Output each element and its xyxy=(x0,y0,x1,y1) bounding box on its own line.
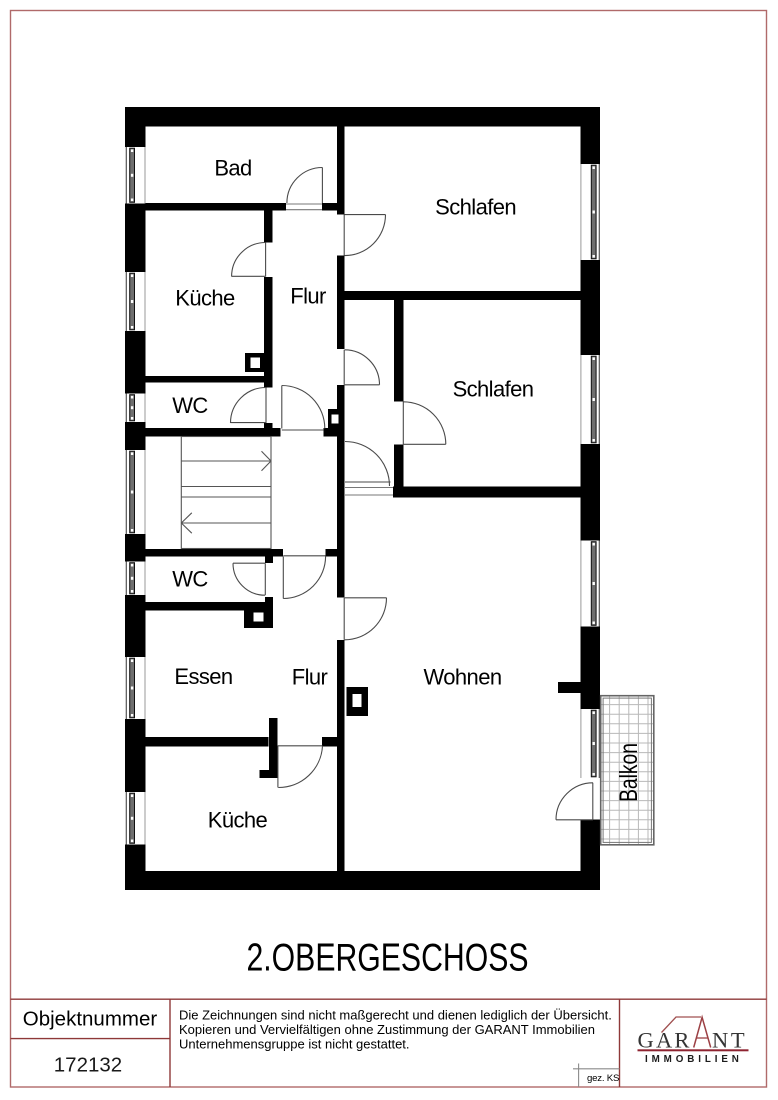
svg-text:2.OBERGESCHOSS: 2.OBERGESCHOSS xyxy=(246,937,528,979)
svg-text:Flur: Flur xyxy=(292,665,328,690)
svg-text:Unternehmensgruppe ist nicht g: Unternehmensgruppe ist nicht gestattet. xyxy=(179,1037,410,1052)
svg-text:gez. KS: gez. KS xyxy=(587,1073,619,1084)
svg-text:GAR: GAR xyxy=(638,1027,692,1052)
svg-text:Die Zeichnungen sind nicht maß: Die Zeichnungen sind nicht maßgerecht un… xyxy=(179,1008,612,1023)
svg-text:Bad: Bad xyxy=(214,155,251,180)
svg-text:Küche: Küche xyxy=(208,808,268,833)
svg-text:Essen: Essen xyxy=(174,664,232,689)
svg-text:Flur: Flur xyxy=(290,284,326,309)
svg-text:Balkon: Balkon xyxy=(614,743,642,802)
svg-text:IMMOBILIEN: IMMOBILIEN xyxy=(645,1054,743,1065)
svg-text:Objektnummer: Objektnummer xyxy=(23,1008,158,1031)
svg-text:Schlafen: Schlafen xyxy=(453,377,534,402)
svg-text:Schlafen: Schlafen xyxy=(435,195,516,220)
svg-text:Kopieren und Vervielfältigen o: Kopieren und Vervielfältigen ohne Zustim… xyxy=(179,1022,595,1037)
svg-text:WC: WC xyxy=(172,393,208,418)
svg-text:Wohnen: Wohnen xyxy=(424,665,502,690)
svg-text:WC: WC xyxy=(172,567,208,592)
svg-text:NT: NT xyxy=(712,1027,747,1052)
svg-text:Küche: Küche xyxy=(175,286,235,311)
svg-text:172132: 172132 xyxy=(54,1054,122,1077)
